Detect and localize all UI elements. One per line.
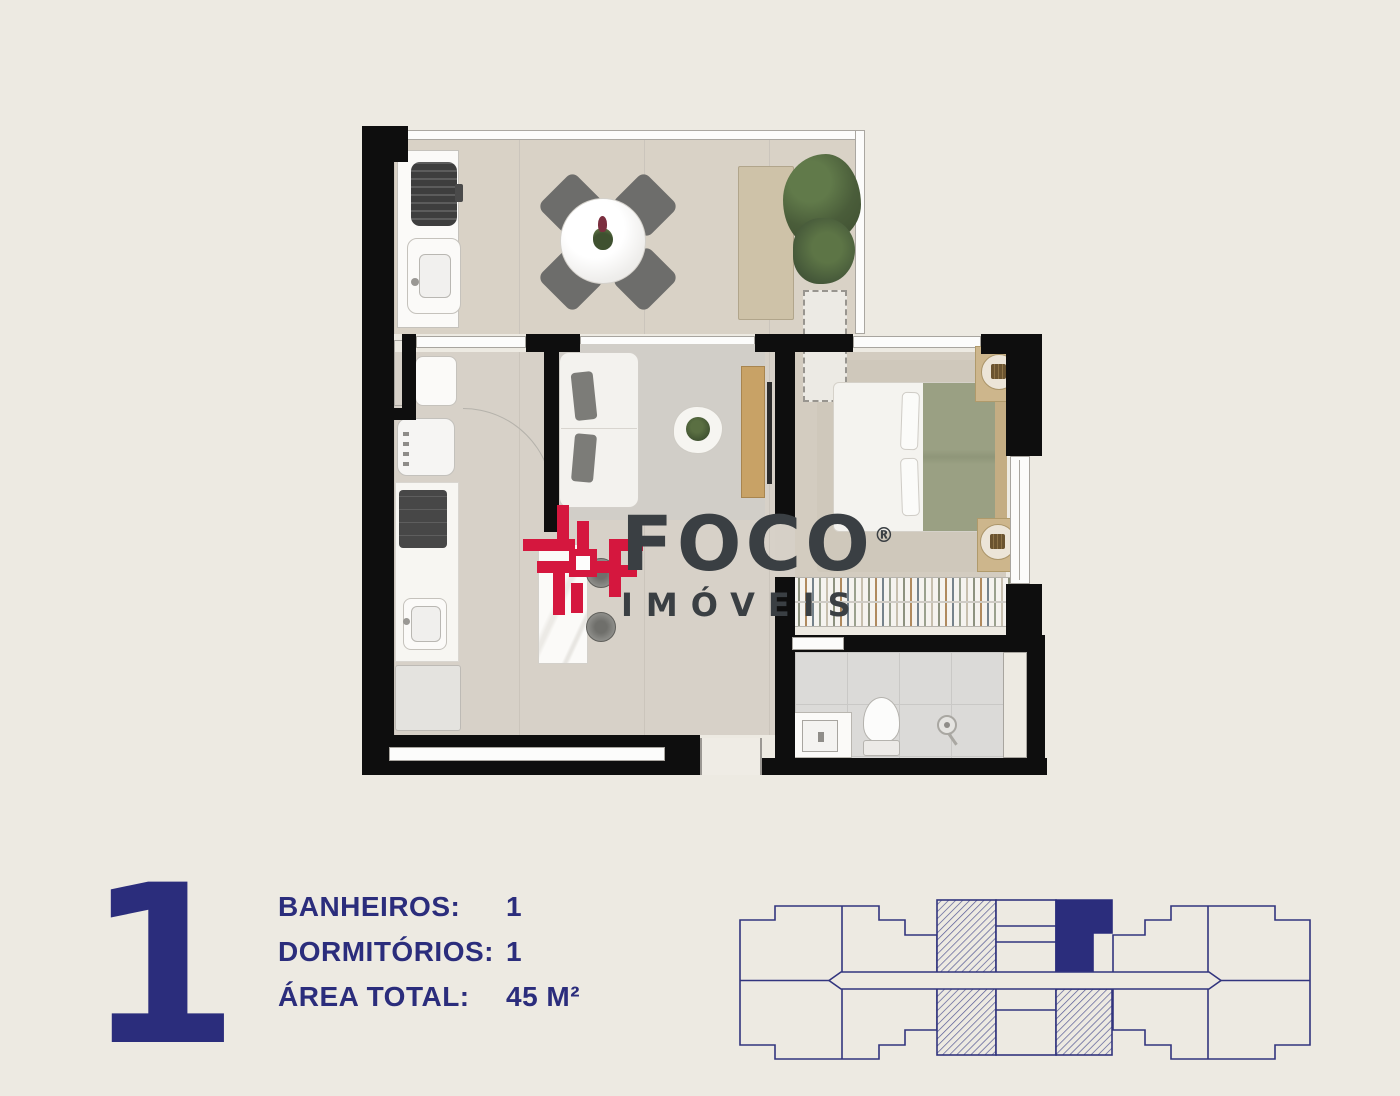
wall-right-upper: [1006, 334, 1042, 456]
shower-head-center: [944, 722, 950, 728]
balcony-window-frame-top: [391, 130, 865, 140]
wall-left: [362, 128, 394, 775]
logo-icon-bar: [523, 539, 575, 551]
key-plan-corridor: [829, 972, 1221, 989]
key-plan-core-hatched-right: [1056, 989, 1112, 1055]
brand-logo: FOCO® IMÓVEIS: [523, 497, 893, 617]
bedroom-side-window: [1010, 456, 1030, 584]
info-value: 1: [506, 891, 522, 923]
info-label: BANHEIROS:: [278, 891, 506, 923]
unit-number: 1: [86, 856, 239, 1076]
laundry-tank-sink: [415, 356, 457, 406]
brand-wordmark: FOCO® IMÓVEIS: [621, 497, 894, 624]
entry-door: [700, 738, 762, 775]
logo-icon-bar: [571, 583, 583, 613]
unit-info-list: BANHEIROS: 1 DORMITÓRIOS: 1 ÁREA TOTAL: …: [278, 891, 580, 1026]
tv-console: [741, 366, 765, 498]
brand-name-text: FOCO: [621, 499, 874, 588]
laundry-window-sill: [416, 336, 526, 348]
nightstand-decor: [990, 534, 1005, 549]
wall-bottom-right: [762, 758, 1047, 775]
info-value: 45 M²: [506, 981, 580, 1013]
balcony-sink-faucet: [411, 278, 419, 286]
tv: [767, 382, 772, 484]
toilet-bowl: [863, 697, 900, 743]
info-row-bathrooms: BANHEIROS: 1: [278, 891, 580, 936]
nightstand-decor: [991, 364, 1006, 379]
floor-plan: [355, 120, 1055, 780]
registered-mark: ®: [874, 523, 894, 547]
bathroom-window: [1003, 652, 1027, 758]
wall-top-left-corner: [362, 126, 408, 162]
bottom-wall-window: [389, 747, 665, 761]
brochure-page: { "page": {"background_color": "#edeae2"…: [0, 0, 1400, 1096]
info-label: ÁREA TOTAL:: [278, 981, 506, 1013]
logo-icon-bar: [577, 521, 589, 551]
info-row-total-area: ÁREA TOTAL: 45 M²: [278, 981, 580, 1026]
sofa-cushion: [571, 433, 597, 483]
kitchen-cabinet: [395, 665, 461, 731]
cooktop: [399, 490, 447, 548]
kitchen-sink-faucet: [403, 618, 410, 625]
wall-segment-living-left: [526, 334, 580, 352]
bed-pillow: [900, 458, 920, 517]
balcony-sink-basin: [419, 254, 451, 298]
bed-blanket: [923, 383, 1004, 531]
info-label: DORMITÓRIOS:: [278, 936, 506, 968]
wall-segment-living-right: [755, 334, 853, 352]
wall-laundry-foot: [394, 408, 416, 420]
balcony-window-frame-right: [855, 130, 865, 334]
wall-bathroom-left: [775, 652, 795, 758]
bed-pillow: [900, 392, 920, 451]
bathroom-sink-faucet: [818, 732, 824, 742]
sofa-split-line: [561, 428, 637, 429]
building-key-plan: [725, 890, 1325, 1065]
info-row-bedrooms: DORMITÓRIOS: 1: [278, 936, 580, 981]
bedroom-side-window-line: [1019, 460, 1020, 580]
kitchen-sink-basin: [411, 606, 441, 642]
info-value: 1: [506, 936, 522, 968]
coffee-table-plant: [686, 417, 710, 441]
logo-icon-bar: [553, 567, 565, 615]
logo-icon-square: [569, 549, 597, 577]
bathroom-door: [792, 637, 844, 650]
brand-subtitle: IMÓVEIS: [621, 586, 894, 624]
bedroom-window-sill: [853, 336, 981, 348]
table-plant-flower: [598, 216, 607, 232]
key-plan-highlighted-unit: [1056, 900, 1112, 972]
wall-right-lower: [1006, 584, 1042, 652]
wall-far-right: [1027, 652, 1045, 775]
wall-bedroom-divider-upper: [775, 334, 795, 520]
barbecue-grill: [411, 162, 457, 226]
washing-machine-panel: [403, 426, 409, 466]
toilet-tank: [863, 740, 900, 756]
barbecue-grill-handle: [455, 184, 463, 202]
brand-name: FOCO®: [621, 497, 894, 582]
